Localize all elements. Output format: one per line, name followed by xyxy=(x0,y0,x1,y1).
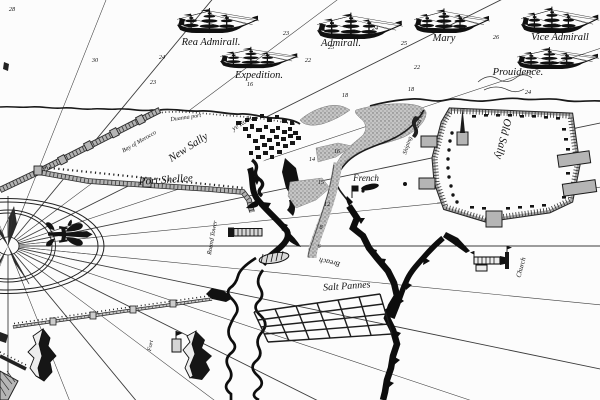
svg-text:24: 24 xyxy=(159,54,165,61)
svg-text:Rea Admirall.: Rea Admirall. xyxy=(181,37,241,48)
svg-text:25: 25 xyxy=(328,44,334,51)
svg-text:24: 24 xyxy=(372,25,378,32)
svg-text:22: 22 xyxy=(414,64,420,71)
svg-text:30: 30 xyxy=(91,57,99,64)
svg-text:12: 12 xyxy=(324,201,330,208)
svg-text:Vice Admirall: Vice Admirall xyxy=(531,32,589,43)
svg-text:26: 26 xyxy=(493,34,500,41)
svg-text:16: 16 xyxy=(334,148,341,155)
svg-text:French: French xyxy=(352,173,379,183)
svg-text:24: 24 xyxy=(525,89,531,96)
svg-text:25: 25 xyxy=(459,26,465,33)
svg-text:28: 28 xyxy=(9,6,16,13)
svg-text:Mary: Mary xyxy=(432,33,456,44)
svg-text:14: 14 xyxy=(309,156,315,163)
svg-text:16: 16 xyxy=(247,81,254,88)
svg-text:18: 18 xyxy=(342,92,349,99)
svg-text:18: 18 xyxy=(408,86,415,93)
svg-text:Expedition.: Expedition. xyxy=(234,70,283,81)
svg-text:25: 25 xyxy=(401,40,407,47)
svg-text:23: 23 xyxy=(150,79,156,86)
svg-text:23: 23 xyxy=(283,30,289,37)
svg-text:15: 15 xyxy=(318,179,324,186)
svg-text:Admirall.: Admirall. xyxy=(320,38,361,49)
svg-text:22: 22 xyxy=(305,57,311,64)
